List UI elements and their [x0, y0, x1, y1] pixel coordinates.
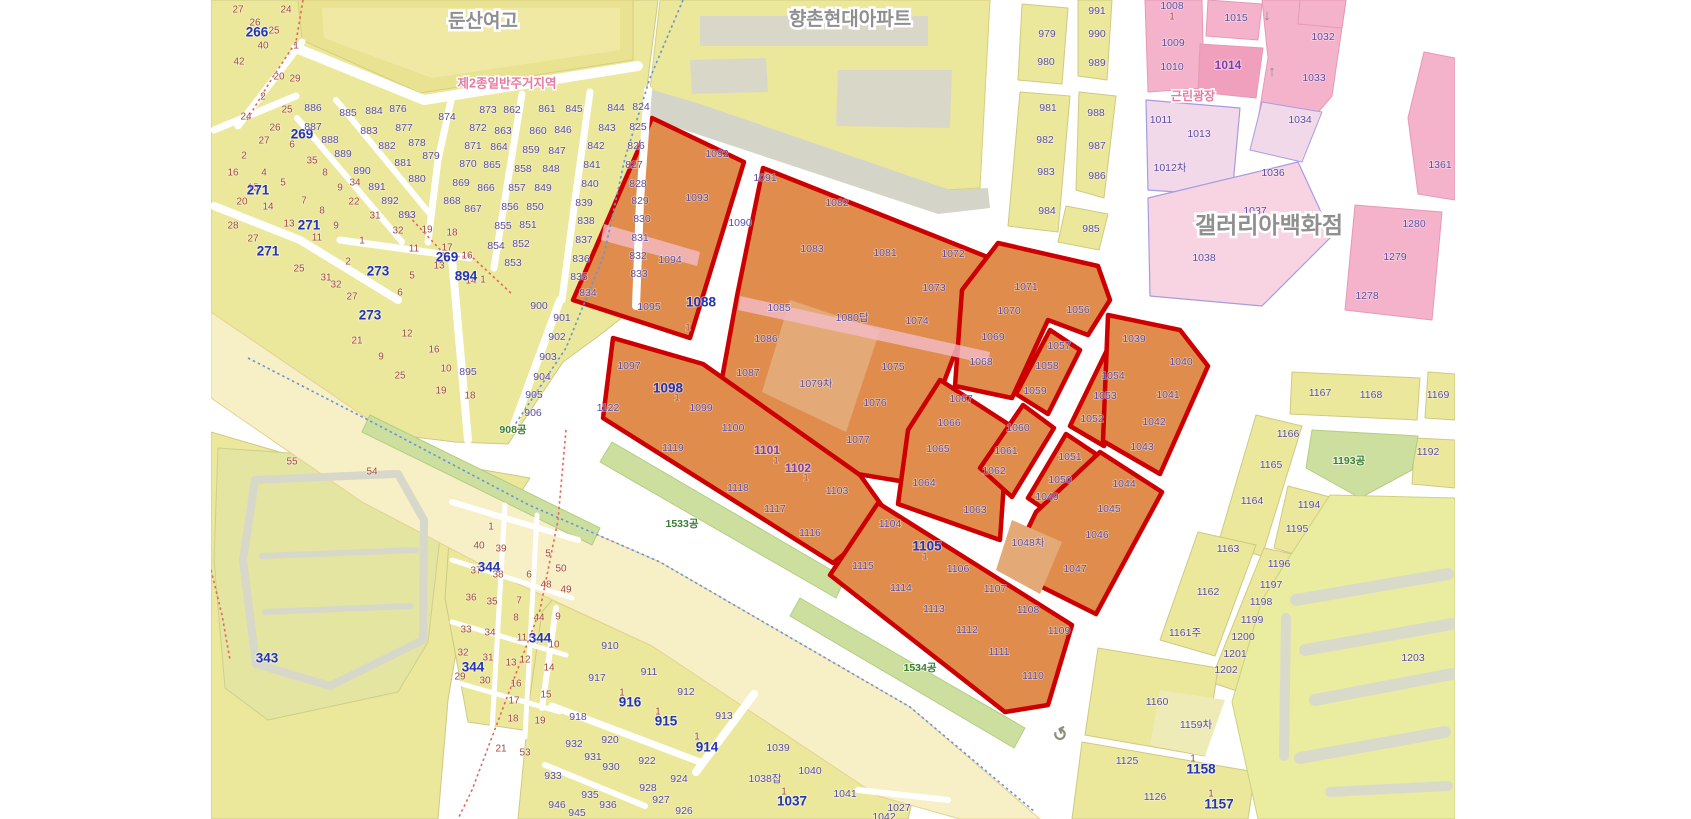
parcel-label: 1013: [1187, 128, 1211, 140]
parcel-label: 25: [281, 105, 293, 116]
parcel-label: 839: [575, 197, 593, 209]
parcel-label: 1072: [941, 248, 965, 260]
pink-1361: [1408, 52, 1455, 200]
parcel-label: 1: [488, 522, 494, 533]
parcel-label: 1159차: [1180, 719, 1213, 731]
parcel-label: 902: [548, 331, 566, 343]
parcel-label: 850: [526, 201, 544, 213]
parcel-label: 886: [304, 102, 322, 114]
parcel-label: 883: [360, 125, 378, 137]
parcel-label: 19: [435, 386, 447, 397]
parcel-label: 881: [394, 157, 412, 169]
parcel-label: 1060: [1006, 422, 1030, 434]
parcel-label: 946: [548, 799, 566, 811]
parcel-label: 1203: [1401, 652, 1425, 664]
parcel-label: 920: [601, 734, 619, 746]
parcel-label: 856: [501, 201, 519, 213]
apartment-parking3: [690, 58, 768, 94]
parcel-label: 882: [378, 140, 396, 152]
parcel-label: 40: [473, 541, 485, 552]
parcel-label: 833: [630, 268, 648, 280]
parcel-label: 1066: [937, 417, 961, 429]
parcel-label: 1115: [852, 560, 874, 572]
parcel-label: 836: [572, 253, 590, 265]
parcel-label: 1036: [1261, 167, 1285, 179]
parcel-label: 1: [1169, 12, 1175, 23]
parcel-label: 42: [233, 57, 245, 68]
parcel-label: 1081: [873, 247, 897, 259]
parcel-label: 835: [570, 271, 588, 283]
parcel-label: 1: [685, 323, 691, 334]
parcel-label: 1192: [1417, 446, 1440, 458]
parcel-label: 874: [438, 111, 456, 123]
parcel-label: 1068: [969, 356, 993, 368]
parcel-label: 842: [587, 140, 605, 152]
parcel-label: 1049: [1035, 491, 1059, 503]
parcel-label: 1160: [1146, 696, 1169, 708]
parcel-label: 838: [577, 215, 595, 227]
parcel-label: 13: [283, 219, 295, 230]
parcel-label: 928: [639, 782, 657, 794]
parcel-label: 1040: [798, 765, 822, 777]
parcel-label: 843: [598, 122, 616, 134]
parcel-label: 1162: [1197, 586, 1220, 598]
road: [1330, 786, 1448, 792]
place-label: 근린광장: [1171, 88, 1215, 103]
parcel-label: 13: [433, 261, 445, 272]
pink-top-sliver: [1298, 0, 1346, 28]
parcel-label: 906: [524, 407, 542, 419]
parcel-label: 844: [607, 102, 625, 114]
parcel-label: 27: [346, 292, 358, 303]
parcel-label: 1097: [617, 360, 641, 372]
map-layers: 2724262662540142202922425262692763589342…: [211, 0, 1455, 819]
parcel-label: 1: [480, 275, 486, 286]
parcel-label: 848: [542, 163, 560, 175]
parcel-label: 55: [286, 457, 298, 468]
parcel-label: 829: [631, 195, 649, 207]
parcel-label: 16: [461, 251, 473, 262]
parcel-label: 31: [369, 211, 381, 222]
traffic-arrow-icon: ↓: [1263, 7, 1271, 24]
place-label: 향촌현대아파트: [789, 8, 911, 30]
parcel-label: 880: [408, 173, 426, 185]
parcel-label: 1095: [637, 301, 661, 313]
parcel-label: 1077: [846, 434, 870, 446]
parcel-label: 2: [241, 151, 247, 162]
parcel-label: 16: [510, 679, 522, 690]
parcel-label: 1040: [1169, 356, 1193, 368]
parcel-label: 1: [773, 456, 779, 467]
parcel-label: 1039: [1122, 333, 1146, 345]
parcel-label: 9: [333, 221, 339, 232]
parcel-label: 935: [581, 789, 599, 801]
parcel-label: 837: [575, 234, 593, 246]
traffic-arrow-icon: ↑: [1268, 63, 1276, 80]
parcel-label: 44: [533, 613, 545, 624]
parcel-label: 11: [517, 633, 528, 644]
parcel-label: 17: [508, 696, 520, 707]
parcel-label: 827: [625, 159, 643, 171]
parcel-label: 1: [619, 688, 625, 699]
parcel-label: 1194: [1298, 499, 1321, 511]
parcel-label: 16: [428, 345, 440, 356]
parcel-label: 854: [487, 240, 505, 252]
parcel-label: 893: [398, 209, 416, 221]
parcel-label: 31: [320, 273, 332, 284]
parcel-label: 30: [479, 676, 491, 687]
parcel-label: 922: [638, 755, 656, 767]
parcel-label: 1168: [1360, 389, 1383, 401]
parcel-label: 1015: [1224, 12, 1248, 24]
parcel-label: 851: [519, 219, 537, 231]
parcel-label: 932: [565, 738, 583, 750]
parcel-label: 1109: [1048, 625, 1071, 637]
parcel-label: 32: [330, 280, 342, 291]
parcel-label: 1056: [1066, 304, 1090, 316]
parcel-label: 1103: [826, 485, 849, 497]
parcel-label: 33: [460, 625, 472, 636]
parcel-label: 1: [1190, 754, 1196, 765]
parcel-label: 1198: [1250, 596, 1273, 608]
parcel-label: 1: [655, 707, 661, 718]
parcel-label: 6: [526, 570, 532, 581]
parcel-label: 847: [548, 145, 566, 157]
parcel-label: 271: [247, 183, 270, 198]
parcel-label: 989: [1088, 57, 1106, 69]
parcel-label: 16: [227, 168, 239, 179]
parcel-label: 828: [629, 178, 647, 190]
parcel-label: 48: [540, 580, 552, 591]
parcel-label: 11: [409, 244, 420, 255]
parcel-label: 1050: [1048, 474, 1072, 486]
parcel-label: 273: [359, 308, 382, 323]
parcel-label: 1074: [905, 315, 929, 327]
pink-1034: [1250, 102, 1322, 162]
parcel-label: 918: [569, 711, 587, 723]
parcel-label: 53: [519, 748, 531, 759]
parcel-label: 1108: [1017, 604, 1040, 616]
parcel-label: 8: [513, 613, 519, 624]
parcel-label: 1083: [800, 243, 824, 255]
parcel-label: 1011: [1150, 114, 1173, 126]
parcel-label: 1080답: [835, 312, 868, 324]
parcel-label: 35: [486, 597, 498, 608]
parcel-label: 1113: [923, 603, 945, 615]
parcel-label: 39: [495, 544, 507, 555]
parcel-label: 22: [348, 197, 360, 208]
parcel-label: 1045: [1097, 503, 1121, 515]
parcel-label: 1038잡: [748, 773, 781, 785]
parcel-label: 885: [339, 107, 357, 119]
parcel-label: 1079차: [799, 378, 832, 390]
parcel-label: 1052: [1080, 413, 1104, 425]
parcel-label: 901: [553, 312, 571, 324]
parcel-label: 1090: [728, 217, 752, 229]
parcel-label: 266: [246, 25, 269, 40]
parcel-label: 890: [353, 165, 371, 177]
parcel-label: 1043: [1130, 441, 1154, 453]
parcel-label: 1069: [981, 331, 1005, 343]
parcel-label: 894: [455, 269, 478, 284]
parcel-label: 344: [462, 660, 485, 675]
parcel-label: 29: [289, 74, 301, 85]
parcel-label: 24: [240, 112, 252, 123]
cadastral-map[interactable]: 2724262662540142202922425262692763589342…: [0, 0, 1691, 819]
parcel-label: 1046: [1085, 529, 1109, 541]
parcel-label: 1099: [689, 402, 713, 414]
parcel-label: 1042: [1142, 416, 1166, 428]
parcel-label: 1279: [1383, 251, 1407, 263]
parcel-label: 1: [781, 787, 787, 798]
parcel-label: 18: [446, 228, 458, 239]
parcel-label: 903: [539, 351, 557, 363]
parcel-label: 1048차: [1011, 537, 1044, 549]
parcel-label: 905: [525, 389, 543, 401]
parcel-label: 1093: [685, 192, 709, 204]
parcel-label: 5: [545, 549, 551, 560]
parcel-label: 27: [232, 5, 244, 16]
parcel-label: 12: [401, 329, 413, 340]
parcel-label: 6: [397, 288, 403, 299]
parcel-label: 32: [457, 648, 469, 659]
parcel-label: 1085: [767, 302, 791, 314]
parcel-label: 1047: [1063, 563, 1087, 575]
parcel-label: 28: [227, 221, 239, 232]
parcel-label: 27: [258, 136, 270, 147]
parcel-label: 1042: [872, 811, 896, 819]
parcel-label: 9: [337, 183, 343, 194]
parcel-label: 34: [484, 628, 496, 639]
parcel-label: 912: [677, 686, 695, 698]
parcel-label: 1087: [736, 367, 760, 379]
parcel-label: 945: [568, 807, 586, 819]
parcel-label: 926: [675, 805, 693, 817]
parcel-label: 21: [495, 744, 507, 755]
parcel-label: 271: [298, 218, 321, 233]
parcel-label: 271: [257, 244, 280, 259]
parcel-label: 860: [529, 125, 547, 137]
parcel-label: 1200: [1231, 631, 1255, 643]
map-viewport[interactable]: 2724262662540142202922425262692763589342…: [0, 0, 1691, 819]
parcel-label: 889: [334, 148, 352, 160]
parcel-label: 852: [512, 238, 530, 250]
parcel-label: 1: [694, 732, 700, 743]
parcel-label: 38: [492, 570, 504, 581]
parcel-label: 26: [269, 123, 281, 134]
parcel-label: 18: [507, 714, 519, 725]
parcel-label: 840: [581, 178, 599, 190]
parcel-label: 831: [631, 232, 649, 244]
apartment-parking2: [836, 70, 952, 128]
parcel-label: 900: [530, 300, 548, 312]
parcel-label: 864: [490, 141, 508, 153]
parcel-label: 1107: [984, 583, 1007, 595]
parcel-label: 863: [494, 125, 512, 137]
parcel-label: 1110: [1022, 670, 1044, 682]
traffic-arrow-icon: ↺: [1049, 722, 1071, 747]
parcel-label: 25: [394, 371, 406, 382]
parcel-label: 34: [349, 178, 361, 189]
parcel-label: 1012차: [1153, 162, 1186, 174]
parcel-label: 1064: [912, 477, 936, 489]
place-label: 둔산여고: [448, 10, 518, 32]
parcel-label: 1: [803, 473, 809, 484]
parcel-label: 877: [395, 122, 413, 134]
parcel-label: 12: [519, 655, 531, 666]
parcel-label: 865: [483, 159, 501, 171]
parcel-label: 7: [301, 196, 307, 207]
parcel-label: 35: [306, 156, 318, 167]
parcel-label: 1010: [1160, 61, 1184, 73]
parcel-label: 982: [1036, 134, 1054, 146]
parcel-label: 1165: [1260, 459, 1283, 471]
parcel-label: 1106: [947, 563, 970, 575]
parcel-label: 1058: [1035, 360, 1059, 372]
parcel-label: 872: [469, 122, 487, 134]
parcel-label: 983: [1037, 166, 1055, 178]
parcel-label: 10: [548, 640, 560, 651]
parcel-label: 1082: [825, 197, 849, 209]
parcel-label: 4: [261, 168, 267, 179]
parcel-label: 841: [583, 159, 601, 171]
parcel-label: 1: [1208, 789, 1214, 800]
parcel-label: 1: [293, 41, 299, 52]
parcel-label: 913: [715, 710, 733, 722]
parcel-label: 36: [465, 593, 477, 604]
parcel-label: 1054: [1101, 370, 1125, 382]
parcel-label: 49: [560, 585, 572, 596]
parcel-label: 845: [565, 103, 583, 115]
parcel-label: 879: [422, 150, 440, 162]
parcel-label: 6: [289, 140, 295, 151]
parcel-label: 1111: [988, 646, 1009, 658]
parcel-label: 1009: [1161, 37, 1185, 49]
parcel-label: 1169: [1427, 389, 1450, 401]
parcel-label: 1086: [754, 333, 778, 345]
yellow-979: [1018, 4, 1068, 84]
parcel-label: 825: [629, 121, 647, 133]
parcel-label: 1126: [1144, 791, 1167, 803]
parcel-label: 1201: [1223, 648, 1247, 660]
parcel-label: 1278: [1355, 290, 1379, 302]
parcel-label: 18: [464, 391, 476, 402]
parcel-label: 1063: [963, 504, 987, 516]
parcel-label: 1041: [1156, 389, 1180, 401]
parcel-label: 832: [629, 250, 647, 262]
parcel-label: 1044: [1112, 478, 1136, 490]
parcel-label: 990: [1088, 28, 1106, 40]
place-label: 갤러리아백화점: [1195, 212, 1343, 238]
parcel-label: 11: [312, 233, 323, 244]
parcel-label: 1197: [1260, 579, 1283, 591]
parcel-label: 862: [503, 104, 521, 116]
parcel-label: 888: [321, 134, 339, 146]
parcel-label: 1534공: [903, 662, 936, 674]
parcel-label: 1117: [764, 503, 786, 515]
parcel-label: 1104: [879, 518, 902, 530]
parcel-label: 1033: [1302, 72, 1326, 84]
parcel-label: 1195: [1286, 523, 1309, 535]
parcel-label: 1114: [890, 582, 912, 594]
parcel-label: 904: [533, 371, 551, 383]
parcel-label: 2: [345, 257, 351, 268]
parcel-label: 986: [1088, 170, 1106, 182]
parcel-label: 1067: [949, 393, 973, 405]
parcel-label: 873: [479, 104, 497, 116]
parcel-label: 849: [534, 182, 552, 194]
parcel-label: 1032: [1311, 31, 1335, 43]
parcel-label: 857: [508, 182, 526, 194]
parcel-label: 867: [464, 203, 482, 215]
parcel-label: 1051: [1058, 451, 1082, 463]
parcel-label: 1: [359, 236, 365, 247]
parcel-label: 1062: [982, 465, 1006, 477]
parcel-label: 25: [293, 264, 305, 275]
parcel-label: 855: [494, 220, 512, 232]
parcel-label: 1065: [926, 443, 950, 455]
parcel-label: 9: [378, 352, 384, 363]
parcel-label: 1094: [658, 254, 682, 266]
parcel-label: 1088: [686, 295, 717, 310]
parcel-label: 1076: [863, 397, 887, 409]
parcel-label: 908공: [499, 424, 527, 436]
parcel-label: 1091: [753, 172, 777, 184]
parcel-label: 5: [280, 178, 286, 189]
parcel-label: 1053: [1093, 390, 1117, 402]
parcel-label: 861: [538, 103, 556, 115]
parcel-label: 984: [1038, 205, 1056, 217]
parcel-label: 1163: [1217, 543, 1240, 555]
parcel-label: 54: [366, 467, 378, 478]
parcel-label: 1167: [1309, 387, 1332, 399]
parcel-label: 826: [627, 140, 645, 152]
parcel-label: 19: [534, 716, 546, 727]
parcel-label: 15: [540, 690, 552, 701]
parcel-label: 1280: [1402, 218, 1426, 230]
parcel-label: 1202: [1214, 664, 1238, 676]
parcel-label: 936: [599, 799, 617, 811]
parcel-label: 1125: [1116, 755, 1139, 767]
parcel-label: 924: [670, 773, 688, 785]
parcel-label: 1075: [881, 361, 905, 373]
parcel-label: 1: [674, 393, 680, 404]
parcel-label: 930: [602, 761, 620, 773]
parcel-label: 10: [440, 364, 452, 375]
parcel-label: 853: [504, 257, 522, 269]
parcel-label: 7: [516, 596, 522, 607]
parcel-label: 1193공: [1333, 455, 1366, 467]
parcel-label: 1199: [1241, 614, 1264, 626]
parcel-label: 20: [236, 197, 248, 208]
parcel-label: 343: [256, 651, 279, 666]
parcel-label: 846: [554, 124, 572, 136]
parcel-label: 20: [273, 72, 285, 83]
parcel-label: 892: [381, 195, 399, 207]
parcel-label: 933: [544, 770, 562, 782]
parcel-label: 834: [579, 287, 597, 299]
parcel-label: 1061: [994, 445, 1018, 457]
parcel-label: 32: [392, 226, 404, 237]
parcel-label: 1008: [1160, 0, 1184, 12]
parcel-label: 991: [1088, 5, 1106, 17]
parcel-label: 876: [389, 103, 407, 115]
parcel-label: 5: [409, 271, 415, 282]
parcel-label: 859: [522, 144, 540, 156]
parcel-label: 830: [633, 213, 651, 225]
parcel-label: 14: [262, 202, 274, 213]
parcel-label: 985: [1082, 223, 1100, 235]
